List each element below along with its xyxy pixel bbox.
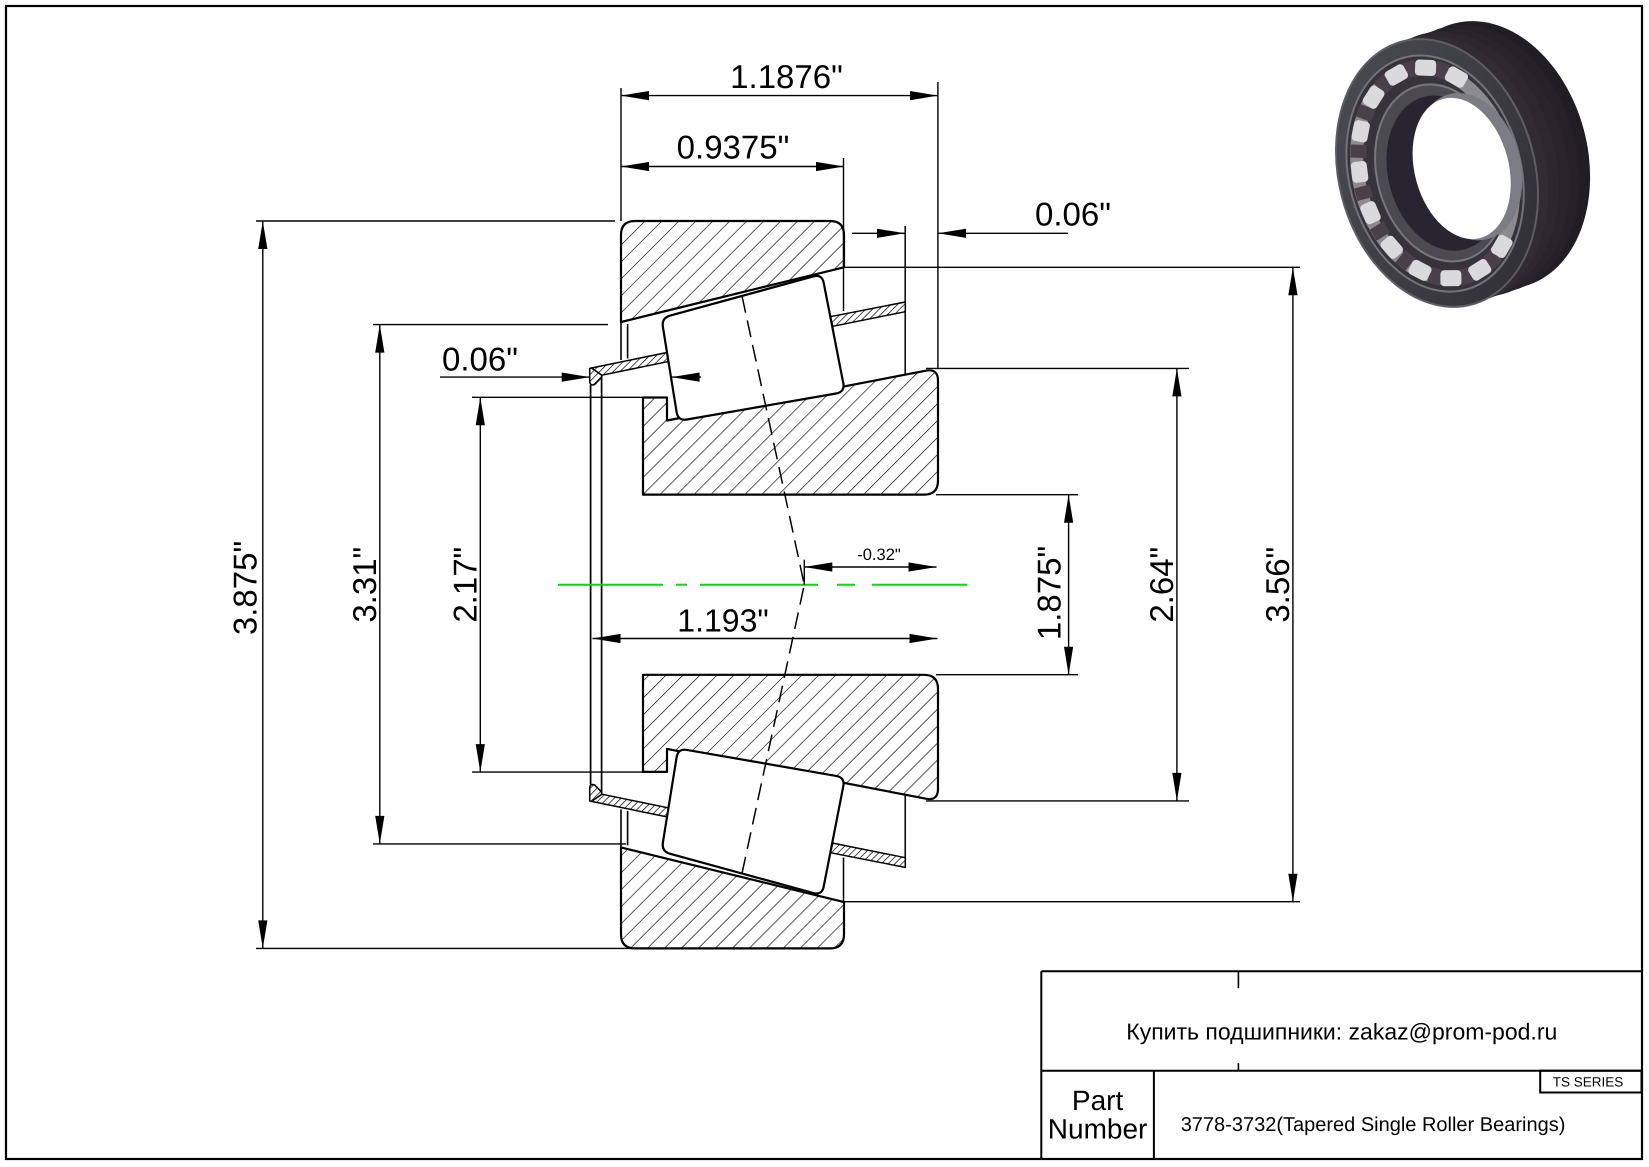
svg-text:1.875": 1.875" (1031, 546, 1068, 640)
svg-text:0.06": 0.06" (1035, 195, 1111, 232)
svg-text:2.64": 2.64" (1143, 547, 1180, 623)
svg-text:Number: Number (1048, 1113, 1148, 1144)
svg-text:TS SERIES: TS SERIES (1553, 1074, 1624, 1089)
svg-text:0.06": 0.06" (442, 340, 518, 377)
svg-text:3.56": 3.56" (1259, 547, 1296, 623)
svg-text:3.31": 3.31" (346, 547, 383, 623)
svg-text:2.17": 2.17" (446, 547, 483, 623)
svg-text:Купить подшипники: zakaz@prom-: Купить подшипники: zakaz@prom-pod.ru (1126, 1018, 1557, 1044)
svg-text:1.193": 1.193" (677, 603, 768, 639)
svg-text:Part: Part (1072, 1085, 1124, 1116)
svg-text:3.875": 3.875" (227, 541, 264, 635)
svg-text:3778-3732(Tapered Single Rolle: 3778-3732(Tapered Single Roller Bearings… (1181, 1114, 1566, 1136)
svg-text:1.1876": 1.1876" (730, 58, 843, 95)
svg-text:-0.32": -0.32" (857, 546, 901, 564)
svg-text:0.9375": 0.9375" (677, 129, 790, 166)
